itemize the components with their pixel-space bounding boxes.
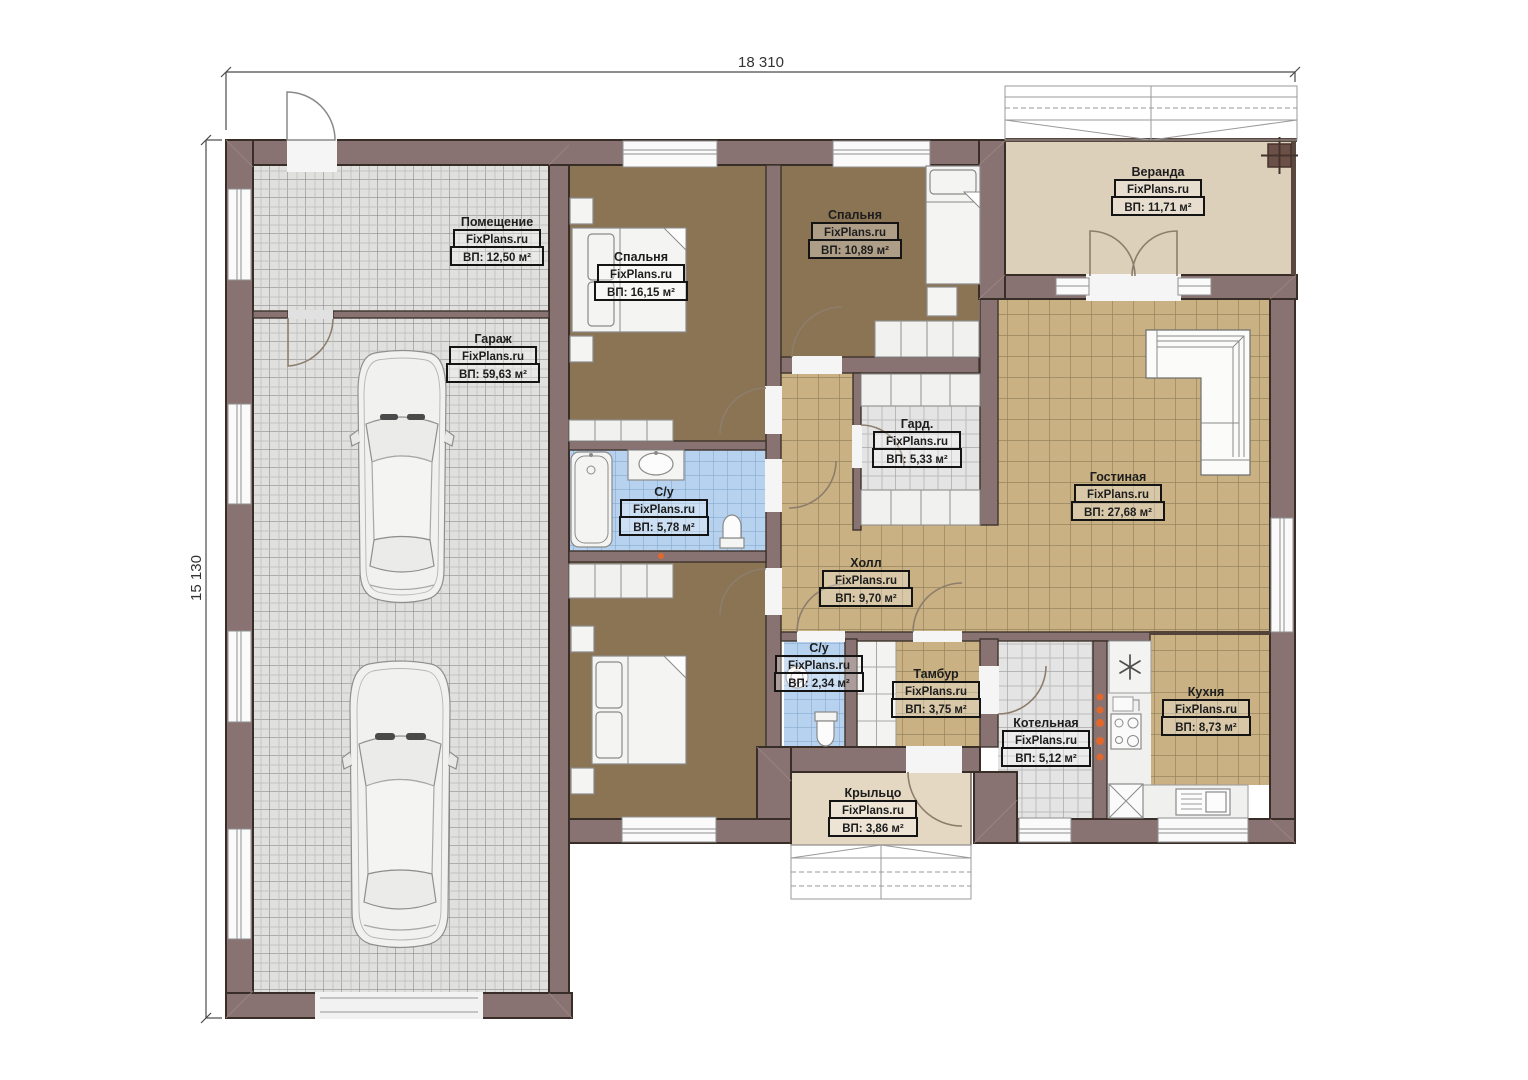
svg-text:FixPlans.ru: FixPlans.ru [1015,735,1077,747]
svg-text:ВП: 9,70 м²: ВП: 9,70 м² [835,593,897,605]
svg-text:ВП: 11,71 м²: ВП: 11,71 м² [1124,202,1191,214]
svg-text:ВП: 5,12 м²: ВП: 5,12 м² [1015,753,1077,765]
svg-text:FixPlans.ru: FixPlans.ru [1087,489,1149,501]
svg-text:FixPlans.ru: FixPlans.ru [835,575,897,587]
svg-text:ВП: 59,63 м²: ВП: 59,63 м² [459,369,527,381]
svg-text:ВП: 3,75 м²: ВП: 3,75 м² [905,704,967,716]
svg-text:18 310: 18 310 [738,54,784,71]
svg-text:ВП: 8,73 м²: ВП: 8,73 м² [1175,722,1237,734]
svg-text:Спальня: Спальня [828,208,882,222]
svg-text:ВП: 5,33 м²: ВП: 5,33 м² [886,454,948,466]
svg-text:FixPlans.ru: FixPlans.ru [610,269,672,281]
svg-text:FixPlans.ru: FixPlans.ru [1127,184,1189,196]
svg-text:Помещение: Помещение [461,215,533,229]
svg-text:FixPlans.ru: FixPlans.ru [886,436,948,448]
svg-text:ВП: 27,68 м²: ВП: 27,68 м² [1084,507,1152,519]
svg-text:FixPlans.ru: FixPlans.ru [788,660,850,672]
svg-text:Гард.: Гард. [901,417,934,431]
svg-text:Кухня: Кухня [1188,685,1225,699]
svg-text:ВП: 3,86 м²: ВП: 3,86 м² [842,823,904,835]
svg-text:FixPlans.ru: FixPlans.ru [824,227,886,239]
svg-text:Тамбур: Тамбур [913,667,959,681]
svg-text:С/у: С/у [809,641,829,655]
svg-text:Гараж: Гараж [474,332,511,346]
svg-text:ВП: 10,89 м²: ВП: 10,89 м² [821,245,889,257]
svg-text:Веранда: Веранда [1131,165,1185,179]
svg-text:FixPlans.ru: FixPlans.ru [462,351,524,363]
svg-text:FixPlans.ru: FixPlans.ru [466,234,528,246]
svg-text:FixPlans.ru: FixPlans.ru [905,686,967,698]
svg-text:Спальня: Спальня [614,250,668,264]
svg-text:ВП: 12,50 м²: ВП: 12,50 м² [463,252,531,264]
svg-text:ВП: 2,34 м²: ВП: 2,34 м² [788,678,850,690]
svg-text:15 130: 15 130 [188,555,205,601]
svg-text:ВП: 16,15 м²: ВП: 16,15 м² [607,287,675,299]
svg-text:Котельная: Котельная [1013,716,1078,730]
svg-text:ВП: 5,78 м²: ВП: 5,78 м² [633,522,695,534]
svg-text:FixPlans.ru: FixPlans.ru [842,805,904,817]
svg-text:Гостиная: Гостиная [1090,470,1147,484]
svg-text:Холл: Холл [850,556,881,570]
svg-text:FixPlans.ru: FixPlans.ru [1175,704,1237,716]
svg-text:FixPlans.ru: FixPlans.ru [633,504,695,516]
svg-text:Крыльцо: Крыльцо [845,786,902,800]
svg-text:С/у: С/у [654,485,674,499]
